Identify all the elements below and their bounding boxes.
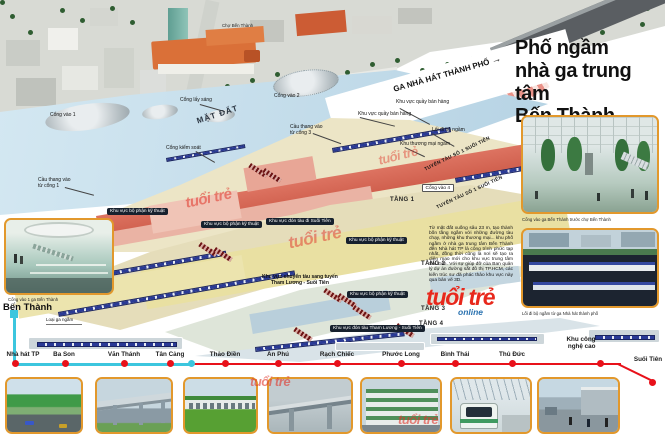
station-dot	[222, 360, 229, 367]
ceiling-skylight	[24, 222, 94, 238]
station-roof	[185, 396, 256, 400]
tree-cluster	[0, 0, 5, 5]
photo-theater-walkway	[521, 228, 659, 308]
pier	[327, 405, 332, 429]
board-suoitien-label: Khu vực đón tàu đi Suối Tiên	[266, 218, 334, 225]
portal-dot	[188, 360, 195, 367]
station-dot	[275, 360, 282, 367]
pier	[161, 401, 165, 423]
terminal-marker	[10, 310, 18, 318]
person	[535, 191, 538, 199]
building	[6, 40, 40, 66]
person	[587, 419, 590, 427]
building	[16, 78, 56, 106]
tech-area-label: Khu vực bộ phận kỹ thuật	[347, 291, 408, 298]
photo-lawn-station	[183, 377, 258, 434]
person	[597, 193, 600, 201]
train-windshield	[466, 407, 492, 417]
station-label: Phước Long	[382, 351, 420, 358]
building	[104, 48, 134, 88]
elevated-station-section	[335, 342, 425, 351]
pier	[113, 405, 117, 425]
city-buildings	[581, 235, 611, 247]
ben-thanh-market-front	[158, 64, 254, 74]
stairs-gate1-label: Cầu thang vào từ cổng 1	[38, 178, 71, 190]
station-label: Bình Thái	[441, 351, 470, 358]
metro-train	[437, 337, 537, 341]
terminal-type-label: Loại ga ngầm	[46, 317, 73, 322]
person	[605, 418, 608, 427]
intro-paragraph: Từ mặt đất xuống sâu 23 m, tạo thành bốn…	[429, 226, 513, 283]
person	[631, 189, 634, 198]
station-label: Nhà hát TP	[7, 351, 40, 358]
photo-train-platform	[450, 377, 532, 434]
tuoitre-watermark: tuổi trẻ	[398, 412, 438, 427]
skylight-label: Cổng lấy sáng	[180, 98, 212, 104]
city-buildings	[621, 232, 655, 247]
walkway-label: Lối đi bộ ngầm	[432, 128, 465, 134]
tuoitre-watermark: tuổi trẻ	[250, 374, 290, 389]
station-label: Văn Thánh	[108, 351, 140, 358]
station-dot	[121, 360, 128, 367]
car	[25, 421, 34, 425]
station-dot	[12, 360, 19, 367]
photo-bg	[7, 379, 81, 432]
tech-area-label: Khu vực bộ phận kỹ thuật	[201, 221, 262, 228]
platform-rail	[36, 264, 106, 266]
station-structure	[581, 387, 619, 415]
station-dot	[649, 379, 656, 386]
floor-band	[6, 278, 112, 294]
station-label: Khu công nghệ cao	[566, 337, 595, 350]
control-gate-label: Cổng kiểm soát	[166, 146, 201, 152]
photo-benthanh-plaza-caption: Cổng vào ga Bến Thành trước chợ Bến Thàn…	[522, 217, 611, 222]
kiosk-area-label: Khu vực quầy bán hàng	[396, 100, 449, 106]
photo-benthanh-plaza	[521, 115, 659, 214]
station-label: Thảo Điền	[210, 351, 240, 358]
tree	[541, 139, 555, 171]
station-dot	[398, 360, 405, 367]
tuoitre-logo: tuổi trẻ online	[426, 286, 494, 317]
pier	[289, 409, 294, 431]
station-dot	[62, 360, 69, 367]
metro-train	[37, 342, 177, 347]
elevated-station-section	[588, 329, 660, 343]
station-label: Rạch Chiếc	[320, 351, 354, 358]
sculpture	[585, 153, 593, 175]
photo-gate1-interior	[4, 218, 114, 295]
station-label: Tân Cảng	[156, 351, 185, 358]
red-roof-block	[295, 10, 347, 36]
metro-line-underground	[15, 363, 192, 366]
elevated-station-section	[28, 337, 183, 350]
person	[20, 256, 23, 264]
gate2-label: Cổng vào 2	[274, 94, 300, 100]
person	[14, 254, 17, 263]
station-label: An Phú	[267, 351, 289, 358]
stairs-gate3-label: Cầu thang vào từ cổng 3	[290, 125, 323, 137]
tech-area-label: Khu vực bộ phận kỹ thuật	[107, 208, 168, 215]
person	[645, 191, 648, 200]
building	[62, 66, 98, 90]
station-dot	[334, 360, 341, 367]
building	[48, 28, 78, 50]
canopy-truss	[452, 379, 530, 400]
kiosk-area-label: Khu vực quầy bán hàng	[358, 112, 411, 118]
metro-train	[595, 335, 655, 340]
infographic-root: Chợ Bến Thành LÊ LỢI GA NHÀ HÁT THÀNH PH…	[0, 0, 665, 438]
truck	[545, 407, 557, 415]
station-dot	[452, 360, 459, 367]
headline-line2: nhà ga trung tâm	[515, 60, 665, 106]
gate1-label: Cổng vào 1	[50, 113, 76, 119]
tuoitre-logo-text: tuổi trẻ	[426, 286, 494, 309]
city-buildings	[529, 233, 569, 247]
station-dot	[509, 360, 516, 367]
photo-theater-walkway-caption: Lối đi bộ ngầm từ ga Nhà hát thành phố	[522, 311, 598, 316]
terminal-type-line	[46, 324, 82, 325]
train-stripe	[460, 419, 498, 423]
station-dot	[167, 360, 174, 367]
ben-thanh-market-cupola	[244, 50, 260, 62]
person	[569, 417, 572, 425]
transfer-area-label: Khu vực chuyển tàu sang tuyến Tham Lương…	[262, 275, 338, 287]
pier	[139, 403, 143, 425]
station-label: Ba Son	[53, 351, 75, 358]
tree	[567, 137, 582, 171]
train-band	[529, 262, 655, 271]
building	[352, 16, 392, 34]
station-dot	[597, 360, 604, 367]
platform-edge	[502, 415, 532, 433]
gate4-label: Cổng vào 4	[422, 184, 454, 192]
train-band	[533, 282, 655, 290]
photo-viaduct	[95, 377, 173, 434]
platform-rail	[30, 272, 108, 274]
station-label: Suối Tiên	[634, 356, 662, 363]
station-windows	[189, 403, 255, 409]
building	[398, 8, 432, 24]
photo-elevated-station-1	[5, 377, 83, 434]
elevated-station-section	[430, 333, 545, 345]
level1-label: TẦNG 1	[390, 197, 414, 203]
board-thamluong-label: Khu vực đón tàu Tham Lương - Suối Tiên	[330, 325, 425, 332]
building	[90, 8, 118, 26]
market-label: Chợ Bến Thành	[222, 23, 253, 28]
car	[59, 424, 67, 428]
photo-street-entrance	[537, 377, 620, 434]
tech-area-label: Khu vực bộ phận kỹ thuật	[346, 237, 407, 244]
headline-line1: Phố ngầm	[515, 37, 665, 60]
station-label: Thủ Đức	[499, 351, 525, 358]
